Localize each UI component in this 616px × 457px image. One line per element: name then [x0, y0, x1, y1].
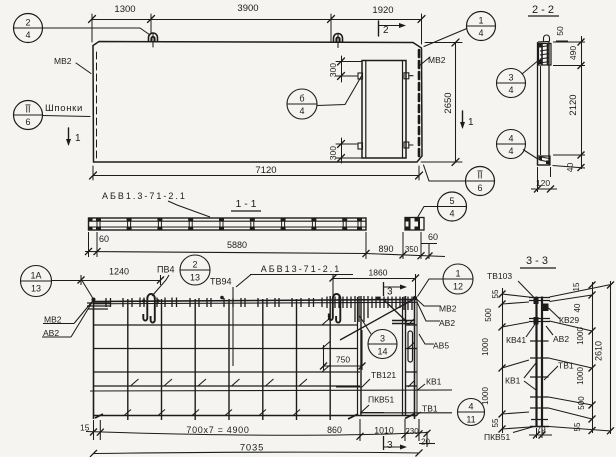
svg-text:АВ2: АВ2: [553, 334, 569, 344]
svg-text:20: 20: [421, 438, 430, 447]
svg-text:2: 2: [383, 25, 389, 36]
svg-text:1000: 1000: [481, 387, 490, 405]
svg-text:55: 55: [573, 422, 582, 431]
svg-text:4: 4: [468, 402, 473, 412]
svg-text:4: 4: [449, 209, 454, 219]
svg-text:4: 4: [25, 30, 30, 40]
svg-text:1А: 1А: [30, 271, 41, 281]
svg-text:МВ2: МВ2: [44, 315, 62, 325]
svg-text:1: 1: [478, 16, 483, 26]
svg-text:ПКВ51: ПКВ51: [368, 395, 394, 405]
svg-text:1: 1: [75, 133, 81, 144]
svg-text:КВ1: КВ1: [505, 376, 521, 386]
svg-text:15: 15: [572, 282, 581, 291]
svg-text:1: 1: [455, 269, 460, 279]
svg-text:3: 3: [380, 334, 385, 344]
svg-text:1240: 1240: [109, 267, 129, 277]
svg-text:1300: 1300: [114, 4, 135, 15]
svg-text:750: 750: [336, 355, 350, 365]
svg-text:МВ2: МВ2: [439, 304, 457, 314]
svg-text:890: 890: [378, 244, 393, 254]
svg-text:АБВ1.3-71-2.1: АБВ1.3-71-2.1: [102, 191, 187, 201]
svg-text:40: 40: [573, 303, 582, 312]
svg-text:2120: 2120: [568, 94, 579, 115]
svg-text:б: б: [299, 94, 304, 104]
svg-text:14: 14: [377, 347, 387, 357]
svg-text:1860: 1860: [369, 268, 388, 278]
svg-text:1010: 1010: [374, 426, 394, 436]
svg-text:300: 300: [328, 63, 338, 77]
svg-text:7120: 7120: [255, 165, 276, 176]
svg-text:2610: 2610: [594, 341, 604, 361]
svg-text:4: 4: [478, 28, 483, 38]
svg-text:МВ2: МВ2: [428, 55, 446, 65]
svg-text:12: 12: [453, 282, 463, 292]
svg-text:2: 2: [192, 260, 197, 270]
svg-text:1000: 1000: [576, 327, 585, 345]
svg-text:55: 55: [491, 418, 500, 427]
svg-text:79: 79: [536, 425, 546, 435]
svg-text:Шпонки: Шпонки: [45, 103, 83, 114]
svg-text:3 - 3: 3 - 3: [526, 255, 548, 267]
svg-text:АВ5: АВ5: [433, 341, 449, 351]
svg-text:3: 3: [387, 287, 393, 298]
svg-text:860: 860: [327, 425, 342, 435]
svg-text:60: 60: [99, 234, 109, 244]
svg-text:3900: 3900: [237, 3, 258, 14]
svg-text:АВ2: АВ2: [43, 328, 59, 338]
svg-text:ТВ1: ТВ1: [422, 404, 438, 414]
svg-text:6: 6: [25, 117, 30, 127]
svg-text:5880: 5880: [227, 240, 247, 250]
svg-text:1920: 1920: [372, 5, 393, 16]
svg-text:40: 40: [565, 163, 575, 173]
svg-text:230: 230: [405, 427, 419, 436]
svg-text:2650: 2650: [443, 92, 454, 113]
svg-text:60: 60: [428, 232, 438, 242]
svg-text:3: 3: [508, 73, 513, 83]
svg-text:120: 120: [536, 178, 550, 188]
svg-text:4: 4: [508, 146, 513, 156]
svg-text:1000: 1000: [481, 338, 490, 356]
svg-text:II: II: [25, 105, 30, 115]
svg-text:300: 300: [328, 146, 338, 160]
svg-text:ТВ1: ТВ1: [558, 361, 574, 371]
svg-text:1: 1: [468, 117, 474, 128]
svg-text:500: 500: [484, 308, 493, 322]
svg-text:4: 4: [508, 85, 513, 95]
svg-text:11: 11: [466, 415, 475, 425]
svg-text:КВ1: КВ1: [426, 377, 442, 387]
svg-text:13: 13: [31, 284, 41, 294]
svg-text:50: 50: [555, 26, 565, 36]
svg-text:490: 490: [568, 46, 578, 60]
svg-text:КВ29: КВ29: [559, 315, 579, 325]
svg-text:7035: 7035: [240, 443, 264, 454]
svg-text:55: 55: [491, 289, 500, 298]
svg-text:5: 5: [449, 196, 454, 206]
svg-text:500: 500: [577, 396, 586, 410]
svg-text:3: 3: [387, 440, 393, 451]
svg-text:АВ2: АВ2: [439, 318, 455, 328]
svg-text:2 - 2: 2 - 2: [532, 4, 554, 16]
svg-text:ПВ4: ПВ4: [157, 265, 174, 275]
svg-text:КВ41: КВ41: [506, 335, 526, 345]
svg-text:13: 13: [190, 273, 200, 283]
svg-text:1000: 1000: [576, 367, 585, 385]
svg-text:2: 2: [25, 18, 30, 28]
svg-text:700х7 = 4900: 700х7 = 4900: [186, 425, 249, 435]
svg-text:ПКВ51: ПКВ51: [484, 432, 510, 442]
svg-text:1 - 1: 1 - 1: [235, 198, 256, 210]
svg-text:4: 4: [508, 134, 513, 144]
svg-text:4: 4: [299, 106, 304, 116]
svg-text:II: II: [477, 171, 482, 181]
svg-text:350: 350: [405, 245, 419, 254]
svg-text:ТВ94: ТВ94: [210, 277, 232, 287]
svg-text:6: 6: [477, 183, 482, 193]
svg-text:ТВ121: ТВ121: [371, 370, 396, 380]
svg-text:МВ2: МВ2: [54, 56, 72, 66]
svg-text:АБВ13-71-2.1: АБВ13-71-2.1: [261, 264, 341, 274]
svg-text:ТВ103: ТВ103: [487, 271, 512, 281]
svg-text:15: 15: [80, 423, 90, 433]
